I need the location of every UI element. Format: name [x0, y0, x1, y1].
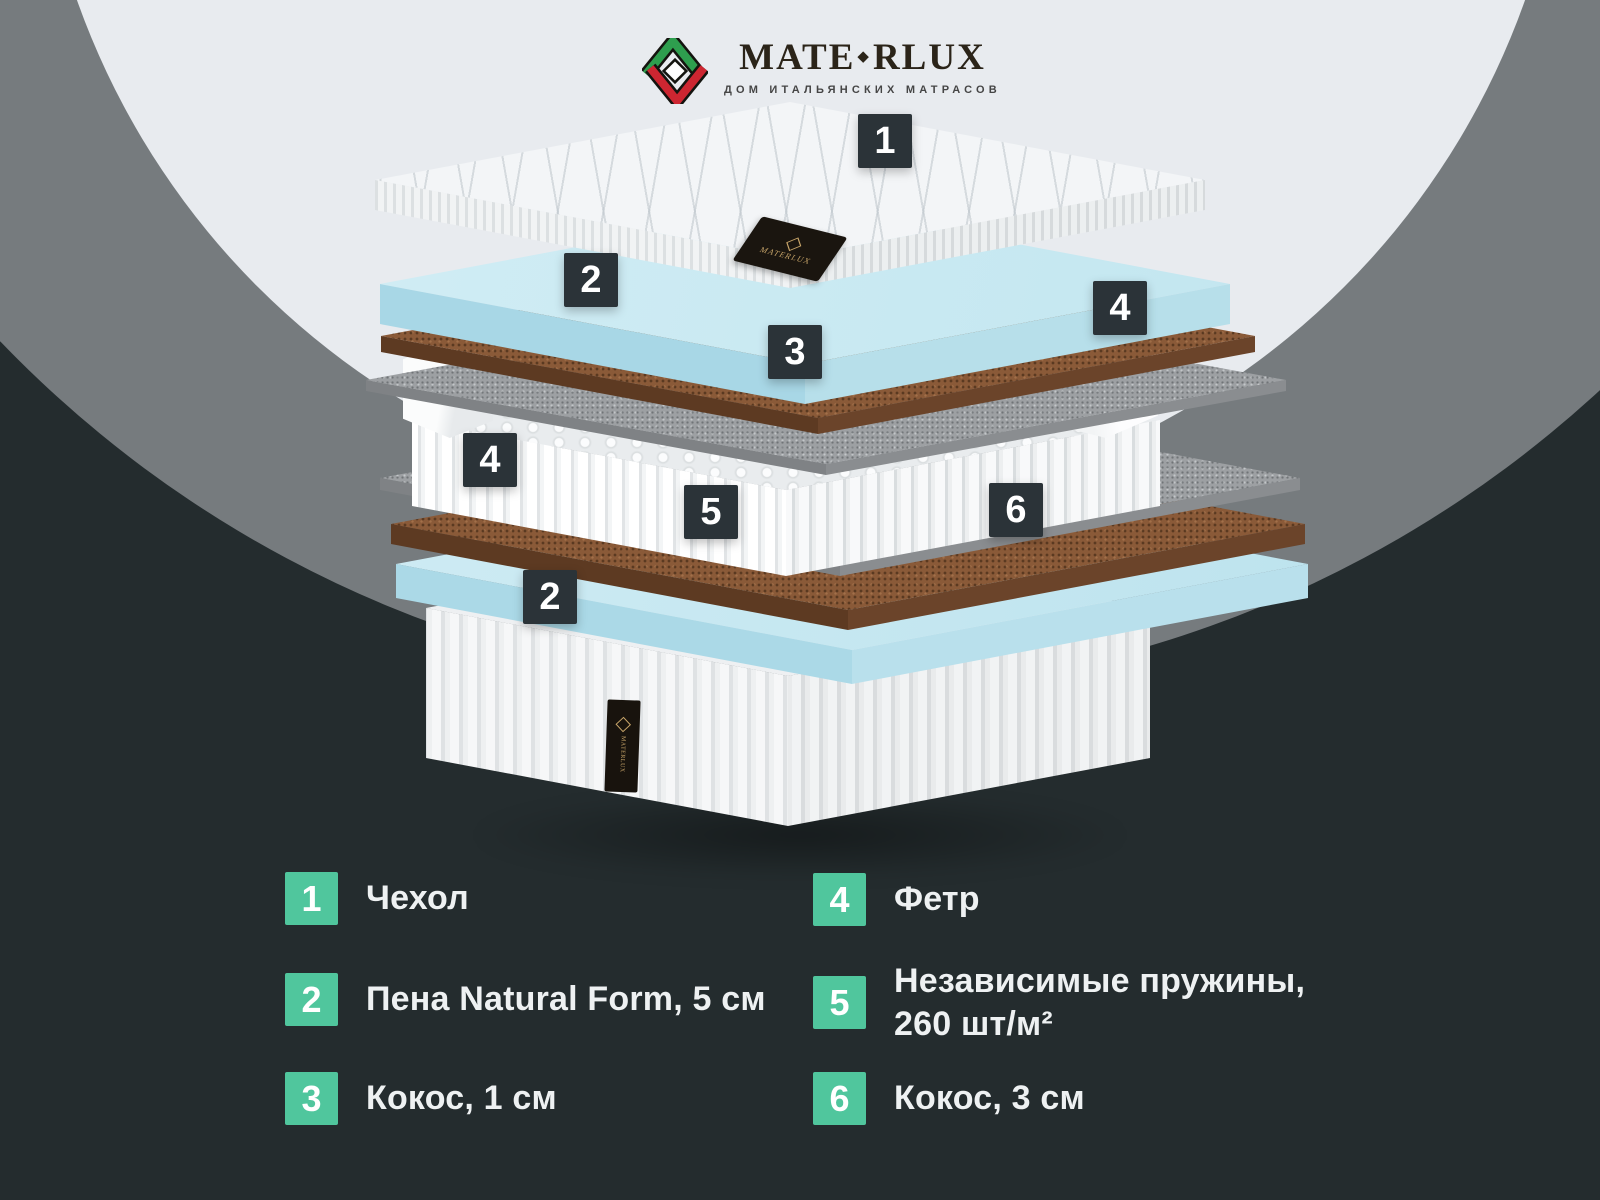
- legend-label: Кокос, 3 см: [894, 1077, 1085, 1120]
- corner-tag-text: MATERLUX: [758, 245, 813, 265]
- marker-4-felt-left: 4: [463, 433, 517, 487]
- marker-2-foam-top: 2: [564, 253, 618, 307]
- infographic-canvas: MATE ◆ RLUX ДОМ ИТАЛЬЯНСКИХ МАТРАСОВ MAT…: [0, 0, 1600, 1200]
- legend-item-6: 6 Кокос, 3 см: [813, 1072, 1085, 1125]
- mattress-exploded-diagram: MATERLUX: [0, 0, 1600, 1200]
- legend-label-line2: 260 шт/м²: [894, 1003, 1305, 1046]
- materlux-side-tag: MATERLUX: [604, 699, 640, 792]
- marker-3-coco-thin: 3: [768, 325, 822, 379]
- legend-number-badge: 4: [813, 873, 866, 926]
- legend-number-badge: 3: [285, 1072, 338, 1125]
- legend-label: Кокос, 1 см: [366, 1077, 557, 1120]
- marker-5-springs: 5: [684, 485, 738, 539]
- legend-item-4: 4 Фетр: [813, 873, 980, 926]
- legend-label-line1: Независимые пружины,: [894, 960, 1305, 1003]
- legend-number-badge: 1: [285, 872, 338, 925]
- side-tag-text: MATERLUX: [619, 736, 626, 773]
- legend-label: Пена Natural Form, 5 см: [366, 978, 766, 1021]
- legend-item-2: 2 Пена Natural Form, 5 см: [285, 973, 766, 1026]
- marker-2-foam-bottom: 2: [523, 570, 577, 624]
- marker-6-coco-thick: 6: [989, 483, 1043, 537]
- tag-emblem-icon: [615, 717, 631, 733]
- legend-label: Чехол: [366, 877, 469, 920]
- tag-emblem-icon: [786, 237, 801, 251]
- legend-item-3: 3 Кокос, 1 см: [285, 1072, 557, 1125]
- legend-number-badge: 2: [285, 973, 338, 1026]
- marker-1-cover: 1: [858, 114, 912, 168]
- legend-label: Независимые пружины, 260 шт/м²: [894, 960, 1305, 1045]
- legend-label-line1: Пена Natural Form, 5 см: [366, 978, 766, 1021]
- legend-item-1: 1 Чехол: [285, 872, 469, 925]
- legend-label-line1: Чехол: [366, 877, 469, 920]
- legend-label-line1: Фетр: [894, 878, 980, 921]
- legend-label-line1: Кокос, 3 см: [894, 1077, 1085, 1120]
- legend-item-5: 5 Независимые пружины, 260 шт/м²: [813, 960, 1305, 1045]
- legend-number-badge: 5: [813, 976, 866, 1029]
- legend-label: Фетр: [894, 878, 980, 921]
- legend-number-badge: 6: [813, 1072, 866, 1125]
- marker-4-felt-right: 4: [1093, 281, 1147, 335]
- legend-label-line1: Кокос, 1 см: [366, 1077, 557, 1120]
